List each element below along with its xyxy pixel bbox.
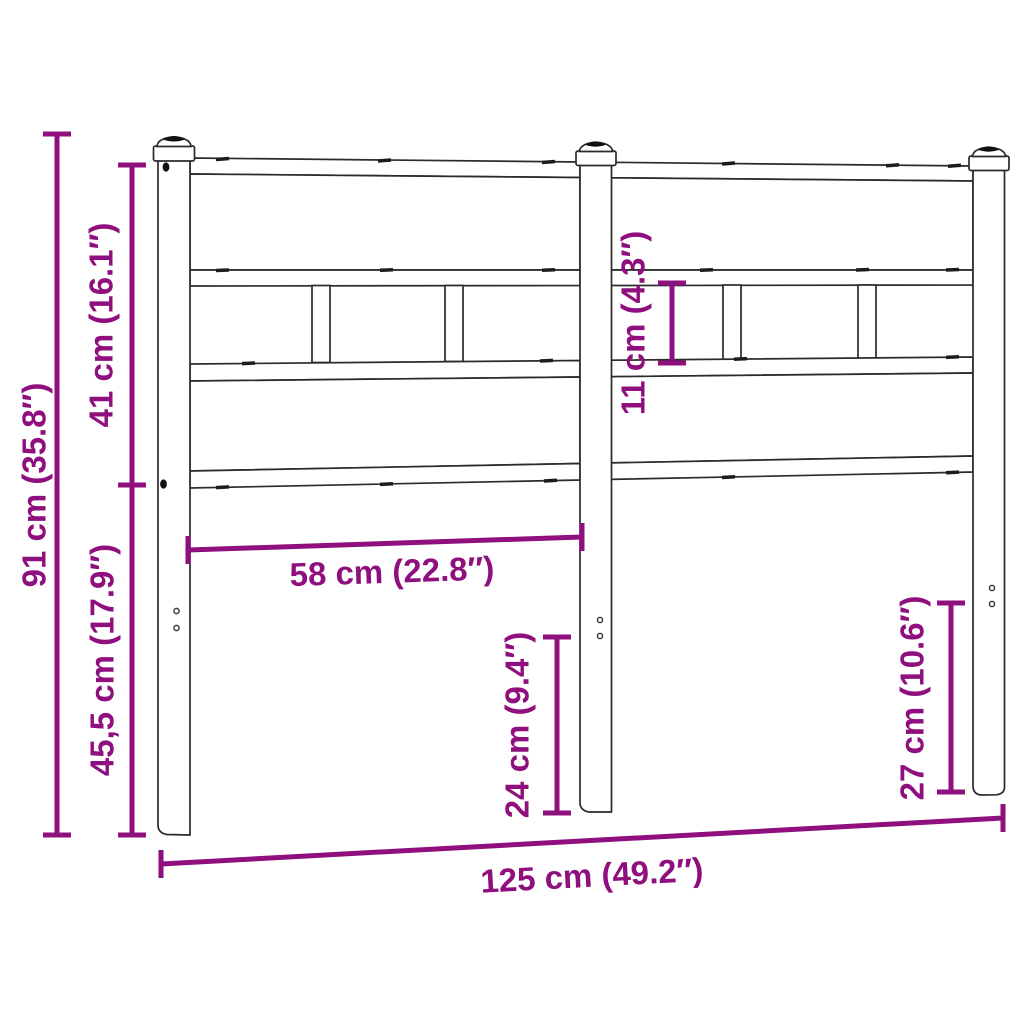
- middle-post: [576, 141, 616, 812]
- dim-side-leg-clearance: 27 cm (10.6″): [894, 596, 965, 801]
- dim-panel-height-label: 41 cm (16.1″): [83, 223, 120, 428]
- dim-mid-leg-clearance: 24 cm (9.4″): [499, 632, 571, 818]
- middle-post-hole-1: [597, 617, 602, 622]
- upper-panel-right: [611, 178, 973, 270]
- left-panel-section: [190, 158, 580, 488]
- headboard-dimension-diagram: 91 cm (35.8″) 41 cm (16.1″) 45,5 cm (17.…: [0, 0, 1024, 1024]
- slat-right-1: [723, 285, 741, 360]
- dim-side-leg-clearance-label: 27 cm (10.6″): [894, 596, 931, 801]
- left-post-cap-collar: [154, 146, 195, 161]
- lower-panel-left: [190, 377, 580, 471]
- mid-rail-left: [190, 270, 580, 286]
- right-panel-section: [611, 162, 973, 479]
- dim-total-height-label: 91 cm (35.8″): [16, 383, 53, 588]
- dim-leg-height-label: 45,5 cm (17.9″): [84, 544, 121, 776]
- dim-slat-gap-label: 11 cm (4.3″): [615, 231, 652, 416]
- middle-post-hole-2: [597, 633, 602, 638]
- dim-leg-height: 45,5 cm (17.9″): [84, 485, 146, 835]
- dim-total-height: 91 cm (35.8″): [16, 134, 71, 835]
- upper-panel-left: [190, 174, 580, 270]
- dim-panel-width: 58 cm (22.8″): [188, 523, 582, 593]
- left-post-hole-2: [174, 625, 179, 630]
- right-post-cap-collar: [969, 156, 1009, 171]
- right-post-hole-1: [989, 585, 994, 590]
- right-post: [969, 146, 1009, 795]
- dim-mid-leg-clearance-label: 24 cm (9.4″): [499, 632, 536, 818]
- slat-left-2: [445, 286, 463, 362]
- left-post-hole-1: [174, 608, 179, 613]
- right-post-hole-2: [989, 601, 994, 606]
- left-post-screw-mid: [160, 479, 167, 488]
- diagram-canvas: 91 cm (35.8″) 41 cm (16.1″) 45,5 cm (17.…: [0, 0, 1024, 1024]
- dim-total-width: 125 cm (49.2″): [161, 804, 1003, 900]
- slat-left-1: [312, 286, 330, 363]
- slat-right-2: [858, 285, 876, 359]
- dim-panel-width-label: 58 cm (22.8″): [289, 549, 495, 593]
- left-post: [154, 136, 195, 835]
- lower-panel-right: [611, 373, 973, 463]
- dim-panel-height: 41 cm (16.1″): [83, 165, 146, 485]
- headboard-drawing: [154, 136, 1010, 835]
- middle-post-cap-collar: [576, 151, 616, 166]
- left-post-screw-top: [163, 162, 170, 171]
- dim-total-width-label: 125 cm (49.2″): [479, 851, 704, 900]
